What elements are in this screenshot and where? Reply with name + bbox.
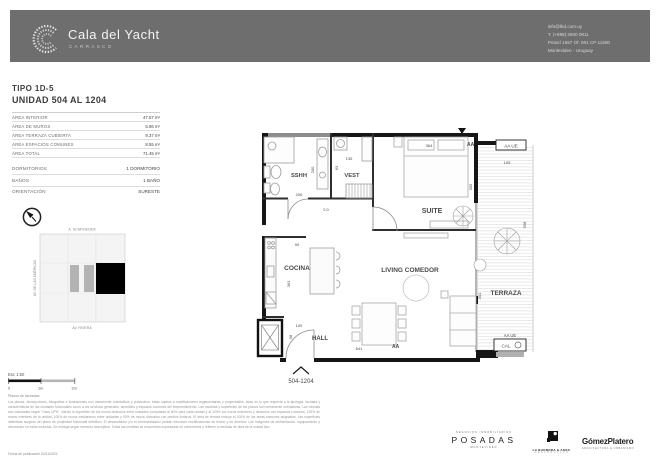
- vestibule-fixtures: [334, 137, 372, 198]
- room-label-sshh: SSHH: [291, 173, 307, 179]
- publication-date: Fecha de publicación 02/11/2021: [8, 452, 58, 456]
- dim-suite-width: 364: [426, 143, 433, 148]
- room-label-terraza: TERRAZA: [490, 290, 521, 297]
- dim-hall-entry: 100: [296, 323, 303, 328]
- room-label-living: LIVING COMEDOR: [381, 267, 439, 274]
- marker-cal: CAL: [502, 344, 511, 349]
- logo-la-buonora-sub: DESARROLLOS: [526, 452, 578, 454]
- core-elevator: [258, 320, 282, 356]
- dim-sshh-width: 206: [296, 192, 303, 197]
- dim-kitchen-depth: 361: [286, 280, 291, 287]
- unit-range-label: 504-1204: [288, 379, 314, 385]
- dim-hall-width: 98: [288, 334, 293, 339]
- logo-posadas-tagline: NEGOCIOS INMOBILIARIOS: [446, 431, 522, 434]
- bathroom-fixtures: [264, 137, 328, 195]
- dim-suite-depth: 305: [468, 183, 473, 190]
- room-label-suite: SUITE: [422, 208, 443, 215]
- dim-living-width: 641: [356, 346, 363, 351]
- logo-posadas: NEGOCIOS INMOBILIARIOS POSADAS MONTEVIDE…: [446, 431, 522, 449]
- dim-misc: 2.0: [323, 207, 329, 212]
- room-label-hall: HALL: [312, 336, 328, 342]
- logo-gomez-platero-sub: ARQUITECTURA & URBANISMO: [582, 447, 652, 450]
- marker-aa-ue-top: AA UE: [504, 144, 518, 149]
- dim-terrace-length: 558: [522, 221, 527, 228]
- suite-plant: [453, 206, 473, 226]
- dim-vest-depth: 63: [334, 165, 339, 170]
- terrace-deck: [478, 145, 533, 352]
- dim-sshh-depth: 200: [310, 166, 315, 173]
- section-marker-aa-top: AA: [467, 142, 475, 148]
- room-label-cocina: COCINA: [284, 265, 310, 272]
- la-buonora-mark-icon: [547, 431, 558, 442]
- dim-terrace-lower: 301: [477, 292, 482, 299]
- floor-plan: AA AA AA UE AA UE CAL SSHH VEST SUITE CO…: [0, 0, 660, 466]
- legal-disclaimer: Los planos, descripciones, fotografías e…: [8, 400, 320, 430]
- kitchen-fixtures: [265, 238, 340, 308]
- unit-range-pointer: 504-1204: [288, 367, 314, 385]
- logo-posadas-sub: MONTEVIDEO: [446, 446, 522, 449]
- dim-vest-width: 135: [346, 156, 353, 161]
- dim-terrace-width: 105: [504, 160, 511, 165]
- marker-aa-ue-bottom: AA UE: [504, 333, 517, 338]
- note-title: Planos de fachadas: [8, 394, 40, 398]
- logo-posadas-name: POSADAS: [446, 435, 522, 445]
- dim-kitchen-width: 90: [295, 242, 300, 247]
- living-furniture: [352, 233, 476, 346]
- logo-la-buonora: LA BUONORA & ASOC. DESARROLLOS: [526, 429, 578, 454]
- room-label-vest: VEST: [344, 173, 360, 179]
- logo-gomez-platero-name: GómezPlatero: [582, 437, 652, 446]
- section-marker-aa-bottom: AA: [392, 344, 400, 350]
- logo-gomez-platero: GómezPlatero ARQUITECTURA & URBANISMO: [582, 437, 652, 450]
